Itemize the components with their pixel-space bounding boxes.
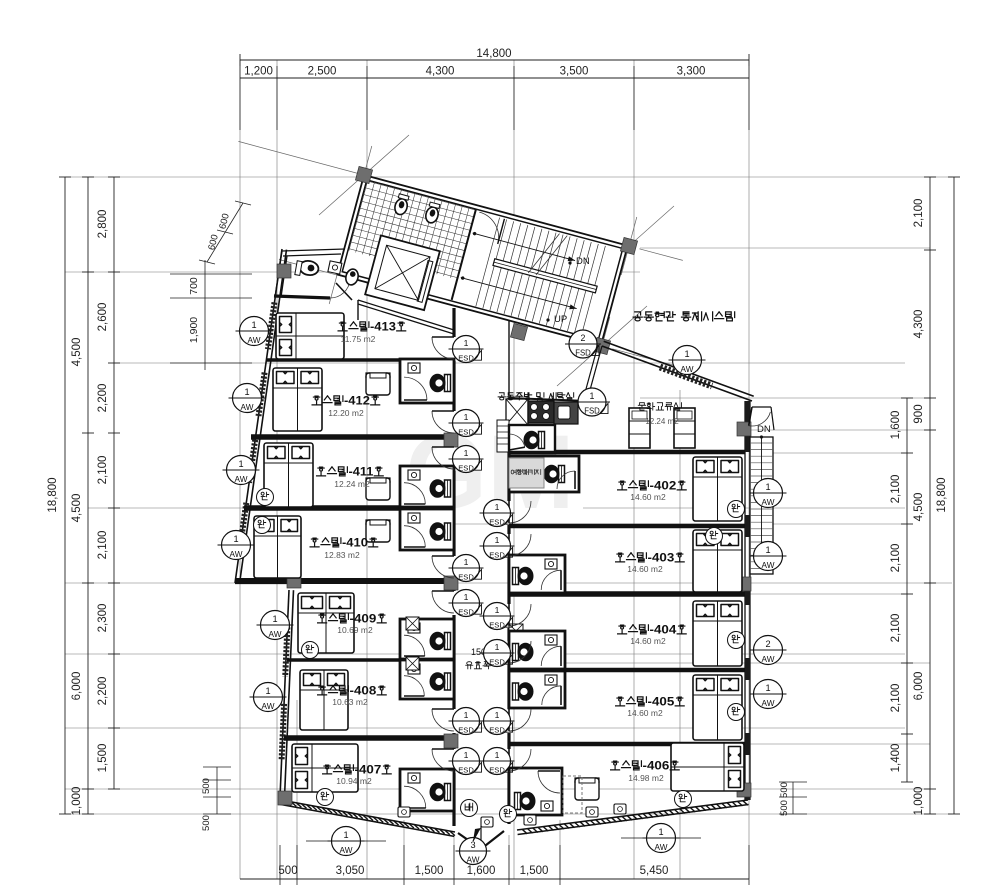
svg-text:14,800: 14,800 — [476, 48, 511, 60]
svg-text:1: 1 — [495, 710, 500, 720]
svg-text:2,100: 2,100 — [97, 456, 109, 485]
svg-text:2,200: 2,200 — [97, 384, 109, 413]
svg-text:700: 700 — [188, 277, 200, 295]
svg-text:1: 1 — [343, 830, 348, 840]
svg-text:12.83 m2: 12.83 m2 — [324, 550, 360, 560]
svg-text:DN: DN — [576, 256, 590, 267]
svg-text:14.60 m2: 14.60 m2 — [627, 708, 663, 718]
svg-text:AW: AW — [230, 550, 243, 559]
svg-text:500: 500 — [779, 800, 790, 816]
svg-text:1: 1 — [658, 827, 663, 837]
svg-text:3,050: 3,050 — [336, 865, 365, 877]
svg-text:2,100: 2,100 — [890, 684, 902, 713]
svg-text:ESD: ESD — [489, 725, 505, 734]
svg-text:FSD: FSD — [575, 349, 591, 358]
svg-text:AW: AW — [762, 561, 775, 570]
svg-text:14.60 m2: 14.60 m2 — [630, 636, 666, 646]
svg-text:-412: -412 — [344, 393, 370, 407]
svg-text:AW: AW — [681, 365, 694, 374]
svg-text:4,300: 4,300 — [913, 310, 925, 339]
svg-text:3,300: 3,300 — [677, 66, 706, 78]
svg-text:ESD: ESD — [489, 657, 505, 666]
svg-text:6,000: 6,000 — [71, 672, 83, 701]
svg-text:AW: AW — [655, 843, 668, 852]
svg-text:6,000: 6,000 — [913, 672, 925, 701]
svg-text:5,450: 5,450 — [640, 865, 669, 877]
svg-text:AW: AW — [269, 630, 282, 639]
svg-text:AW: AW — [241, 403, 254, 412]
svg-text:1: 1 — [495, 642, 500, 652]
svg-text:10.94 m2: 10.94 m2 — [336, 776, 372, 786]
svg-text:ESD: ESD — [489, 550, 505, 559]
svg-text:AW: AW — [248, 336, 261, 345]
svg-text:2,200: 2,200 — [97, 677, 109, 706]
svg-text:ESD: ESD — [489, 765, 505, 774]
svg-text:1: 1 — [244, 387, 249, 397]
svg-text:1: 1 — [272, 614, 277, 624]
svg-text:12.24 m2: 12.24 m2 — [334, 479, 370, 489]
svg-text:1: 1 — [464, 412, 469, 422]
svg-text:2: 2 — [765, 639, 770, 649]
svg-text:2,100: 2,100 — [890, 544, 902, 573]
svg-text:500: 500 — [201, 815, 212, 831]
svg-text:AW: AW — [762, 699, 775, 708]
svg-text:4,500: 4,500 — [71, 494, 83, 523]
svg-text:1: 1 — [495, 502, 500, 512]
svg-text:2,300: 2,300 — [97, 604, 109, 633]
svg-text:3: 3 — [470, 840, 475, 850]
svg-text:1: 1 — [464, 448, 469, 458]
svg-text:ESD: ESD — [458, 463, 474, 472]
svg-text:1,200: 1,200 — [244, 66, 273, 78]
svg-text:-403: -403 — [648, 550, 675, 564]
svg-text:1: 1 — [765, 545, 770, 555]
svg-text:1: 1 — [464, 710, 469, 720]
svg-text:ESD: ESD — [458, 725, 474, 734]
svg-text:14.60 m2: 14.60 m2 — [627, 564, 663, 574]
svg-text:1,500: 1,500 — [520, 865, 549, 877]
svg-text:-410: -410 — [342, 535, 368, 549]
svg-text:1: 1 — [765, 482, 770, 492]
svg-text:1: 1 — [265, 686, 270, 696]
svg-text:ESD: ESD — [489, 620, 505, 629]
svg-text:-406: -406 — [643, 758, 670, 772]
svg-text:2,100: 2,100 — [97, 531, 109, 560]
svg-text:1,600: 1,600 — [467, 865, 496, 877]
svg-text:1: 1 — [590, 391, 595, 401]
svg-text:1: 1 — [495, 750, 500, 760]
svg-text:11.75 m2: 11.75 m2 — [341, 334, 376, 344]
svg-text:900: 900 — [913, 404, 925, 423]
svg-text:1,000: 1,000 — [913, 787, 925, 816]
svg-text:ESD: ESD — [489, 517, 505, 526]
svg-text:1: 1 — [464, 750, 469, 760]
svg-text:2,100: 2,100 — [890, 475, 902, 504]
svg-text:1: 1 — [495, 535, 500, 545]
svg-text:1,900: 1,900 — [188, 317, 200, 343]
svg-text:2,800: 2,800 — [97, 210, 109, 239]
svg-text:AW: AW — [235, 475, 248, 484]
svg-text:500: 500 — [201, 778, 212, 794]
svg-text:1: 1 — [495, 605, 500, 615]
svg-text:1: 1 — [238, 459, 243, 469]
svg-text:12.24 m2: 12.24 m2 — [645, 417, 679, 426]
svg-text:-411: -411 — [349, 464, 374, 478]
svg-text:-407: -407 — [355, 762, 382, 776]
svg-text:14.98 m2: 14.98 m2 — [628, 773, 664, 783]
svg-text:4,300: 4,300 — [426, 66, 455, 78]
svg-text:2,100: 2,100 — [890, 614, 902, 643]
svg-text:ESD: ESD — [458, 607, 474, 616]
svg-text:1,600: 1,600 — [890, 411, 902, 440]
svg-text:1: 1 — [251, 320, 256, 330]
svg-text:-413: -413 — [370, 319, 396, 333]
svg-text:ESD: ESD — [458, 572, 474, 581]
svg-text:10.63 m2: 10.63 m2 — [332, 697, 368, 707]
svg-text:1,500: 1,500 — [415, 865, 444, 877]
svg-text:500: 500 — [779, 782, 790, 798]
svg-text:1: 1 — [464, 592, 469, 602]
svg-text:ESD: ESD — [458, 427, 474, 436]
svg-text:500: 500 — [278, 865, 297, 877]
svg-text:12.20 m2: 12.20 m2 — [328, 408, 364, 418]
svg-text:FSD: FSD — [584, 407, 600, 416]
svg-text:1: 1 — [684, 349, 689, 359]
svg-text:14.60 m2: 14.60 m2 — [630, 492, 666, 502]
svg-text:DN: DN — [757, 424, 771, 435]
svg-text:2,100: 2,100 — [913, 199, 925, 228]
svg-text:ESD: ESD — [458, 765, 474, 774]
svg-text:AW: AW — [762, 655, 775, 664]
svg-text:1,500: 1,500 — [97, 744, 109, 773]
svg-text:2,500: 2,500 — [308, 66, 337, 78]
svg-text:1: 1 — [765, 683, 770, 693]
svg-text:1: 1 — [233, 534, 238, 544]
svg-text:AW: AW — [762, 498, 775, 507]
svg-text:2,600: 2,600 — [97, 303, 109, 332]
svg-text:3,500: 3,500 — [560, 66, 589, 78]
svg-text:AW: AW — [340, 846, 353, 855]
svg-text:AW: AW — [467, 855, 480, 864]
svg-text:2: 2 — [581, 333, 586, 343]
svg-text:AW: AW — [262, 702, 275, 711]
svg-text:-409: -409 — [350, 611, 377, 625]
svg-text:ESD: ESD — [458, 353, 474, 362]
svg-text:4,500: 4,500 — [913, 493, 925, 522]
svg-text:UP: UP — [554, 314, 567, 325]
svg-text:4,500: 4,500 — [71, 338, 83, 367]
svg-text:1,400: 1,400 — [890, 744, 902, 773]
svg-text:1: 1 — [464, 338, 469, 348]
svg-text:18,800: 18,800 — [936, 477, 948, 512]
svg-text:10.69 m2: 10.69 m2 — [337, 625, 373, 635]
svg-text:-402: -402 — [650, 478, 677, 492]
svg-text:1,000: 1,000 — [71, 787, 83, 816]
svg-text:-405: -405 — [648, 694, 675, 708]
svg-text:1: 1 — [464, 557, 469, 567]
svg-text:-408: -408 — [350, 683, 377, 697]
svg-text:18,800: 18,800 — [47, 477, 59, 512]
svg-text:-404: -404 — [650, 622, 677, 636]
